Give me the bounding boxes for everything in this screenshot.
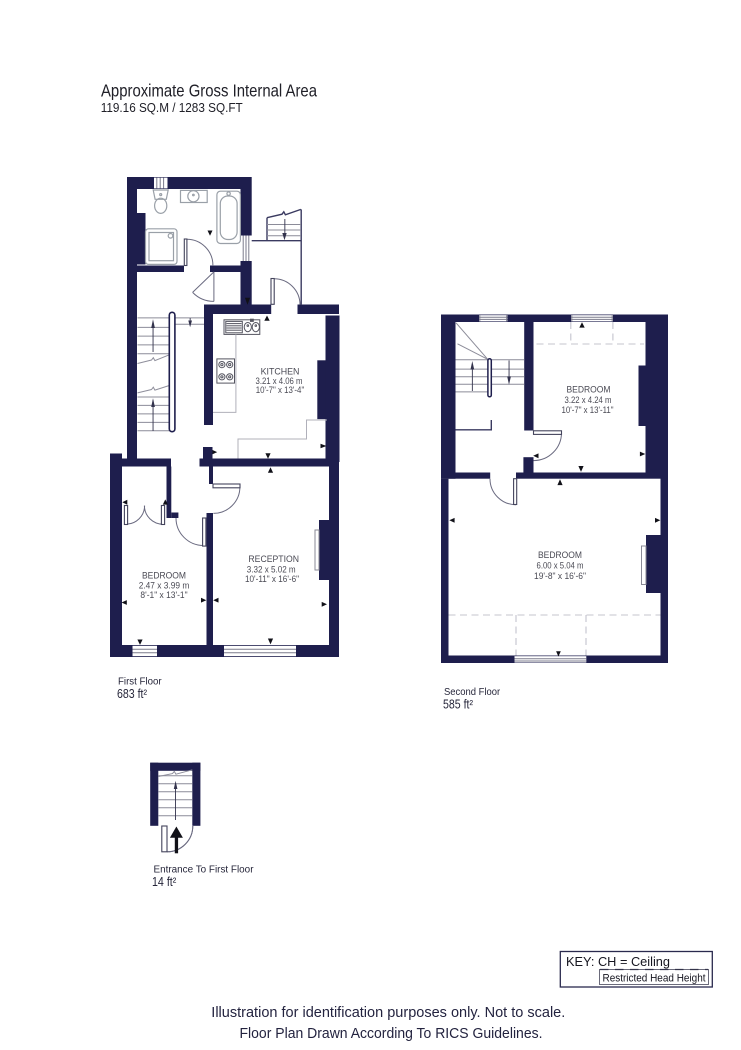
svg-text:8'-1" x 13'-1": 8'-1" x 13'-1"	[140, 590, 187, 600]
svg-text:BEDROOM: BEDROOM	[142, 569, 186, 580]
svg-text:Approximate Gross Internal Are: Approximate Gross Internal Area	[101, 81, 317, 101]
svg-text:19'-8" x 16'-6": 19'-8" x 16'-6"	[534, 571, 586, 581]
svg-text:KITCHEN: KITCHEN	[261, 365, 300, 376]
svg-text:585 ft²: 585 ft²	[443, 698, 473, 712]
svg-text:6.00 x 5.04 m: 6.00 x 5.04 m	[537, 560, 584, 570]
svg-text:14 ft²: 14 ft²	[152, 875, 176, 889]
svg-text:2.47 x 3.99 m: 2.47 x 3.99 m	[139, 580, 190, 590]
svg-text:Entrance To First Floor: Entrance To First Floor	[154, 865, 255, 876]
svg-text:RECEPTION: RECEPTION	[248, 553, 299, 564]
svg-text:683 ft²: 683 ft²	[117, 687, 147, 701]
svg-text:BEDROOM: BEDROOM	[567, 384, 611, 395]
svg-text:First Floor: First Floor	[118, 677, 162, 688]
svg-text:Floor Plan Drawn According To: Floor Plan Drawn According To RICS Guide…	[240, 1026, 543, 1042]
svg-text:10'-7" x 13'-11": 10'-7" x 13'-11"	[562, 405, 614, 415]
svg-text:10'-7" x 13'-4": 10'-7" x 13'-4"	[256, 385, 305, 395]
svg-text:KEY: CH = Ceiling: KEY: CH = Ceiling	[566, 954, 670, 969]
svg-text:Illustration for identificatio: Illustration for identification purposes…	[211, 1005, 565, 1021]
svg-text:3.22 x 4.24 m: 3.22 x 4.24 m	[565, 395, 612, 405]
svg-text:119.16 SQ.M / 1283 SQ.FT: 119.16 SQ.M / 1283 SQ.FT	[101, 100, 243, 115]
svg-text:Restricted Head Height: Restricted Head Height	[603, 972, 706, 984]
svg-text:10'-11" x 16'-6": 10'-11" x 16'-6"	[245, 574, 299, 584]
svg-text:Second Floor: Second Floor	[444, 687, 501, 698]
svg-text:BEDROOM: BEDROOM	[538, 549, 582, 560]
